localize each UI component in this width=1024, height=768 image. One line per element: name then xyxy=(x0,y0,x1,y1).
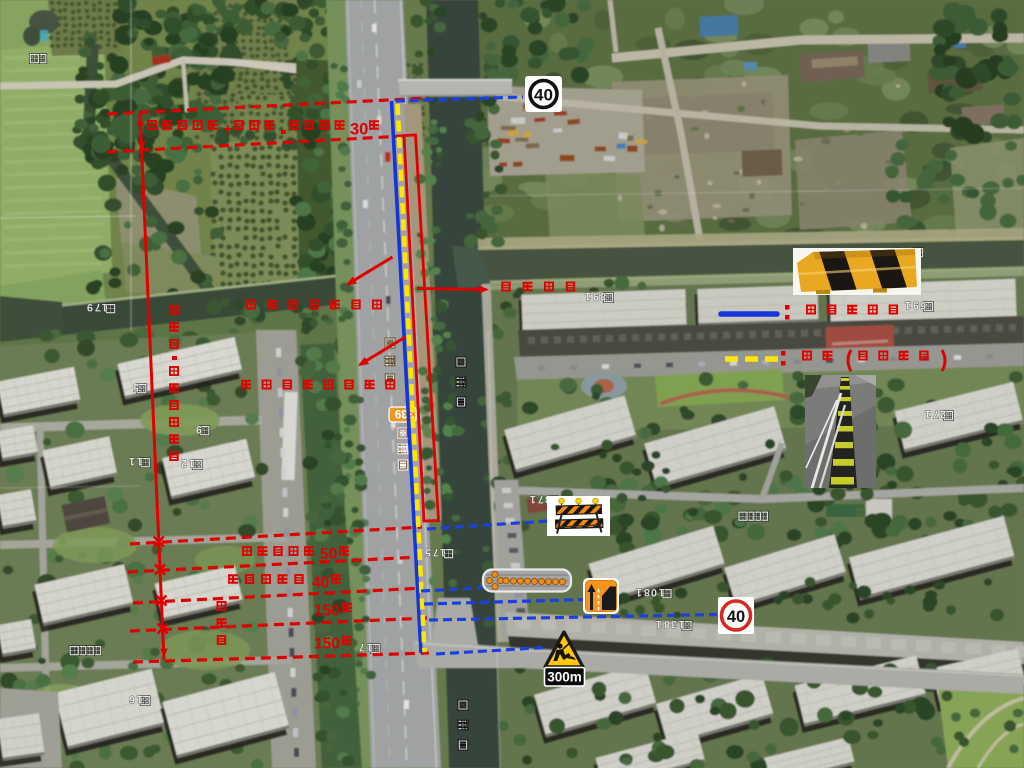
svg-text:8: 8 xyxy=(664,618,670,630)
svg-text:40: 40 xyxy=(312,575,329,592)
svg-text:+: + xyxy=(223,121,232,138)
svg-text:6: 6 xyxy=(920,299,926,311)
svg-text:5: 5 xyxy=(133,381,139,393)
svg-text:7: 7 xyxy=(933,408,939,420)
svg-text:40: 40 xyxy=(534,86,553,105)
svg-text:1: 1 xyxy=(129,455,135,467)
svg-text:9: 9 xyxy=(87,301,93,313)
svg-text:6: 6 xyxy=(129,693,135,705)
svg-text:9: 9 xyxy=(593,290,599,302)
svg-text:1: 1 xyxy=(440,546,446,558)
svg-text:1: 1 xyxy=(102,301,108,313)
svg-text:1: 1 xyxy=(636,586,642,598)
svg-text:1: 1 xyxy=(656,618,662,630)
svg-text:300m: 300m xyxy=(547,670,582,685)
svg-text:50: 50 xyxy=(320,546,337,563)
svg-text:2: 2 xyxy=(181,457,187,469)
svg-text:3: 3 xyxy=(671,618,677,630)
svg-text:1: 1 xyxy=(925,408,931,420)
svg-text:1: 1 xyxy=(679,618,685,630)
svg-text:9: 9 xyxy=(913,299,919,311)
svg-text:7: 7 xyxy=(433,546,439,558)
svg-text:1: 1 xyxy=(585,290,591,302)
svg-text:1: 1 xyxy=(659,586,665,598)
svg-text:5: 5 xyxy=(425,546,431,558)
svg-text:1: 1 xyxy=(905,299,911,311)
svg-text:8: 8 xyxy=(600,290,606,302)
svg-text:2: 2 xyxy=(940,408,946,420)
svg-text:150: 150 xyxy=(314,603,340,620)
svg-text:40: 40 xyxy=(727,608,745,626)
svg-text:7: 7 xyxy=(95,301,101,313)
svg-text:150: 150 xyxy=(314,636,340,653)
svg-text:8: 8 xyxy=(644,586,650,598)
svg-text:7: 7 xyxy=(538,493,544,505)
svg-text:1: 1 xyxy=(137,455,143,467)
svg-text:1: 1 xyxy=(189,457,195,469)
svg-text:1: 1 xyxy=(367,641,373,653)
svg-text:1: 1 xyxy=(137,693,143,705)
svg-text:1: 1 xyxy=(530,493,536,505)
svg-text:30: 30 xyxy=(350,121,368,139)
svg-text:0: 0 xyxy=(651,586,657,598)
svg-text:9: 9 xyxy=(196,423,202,435)
svg-text:7: 7 xyxy=(359,641,365,653)
